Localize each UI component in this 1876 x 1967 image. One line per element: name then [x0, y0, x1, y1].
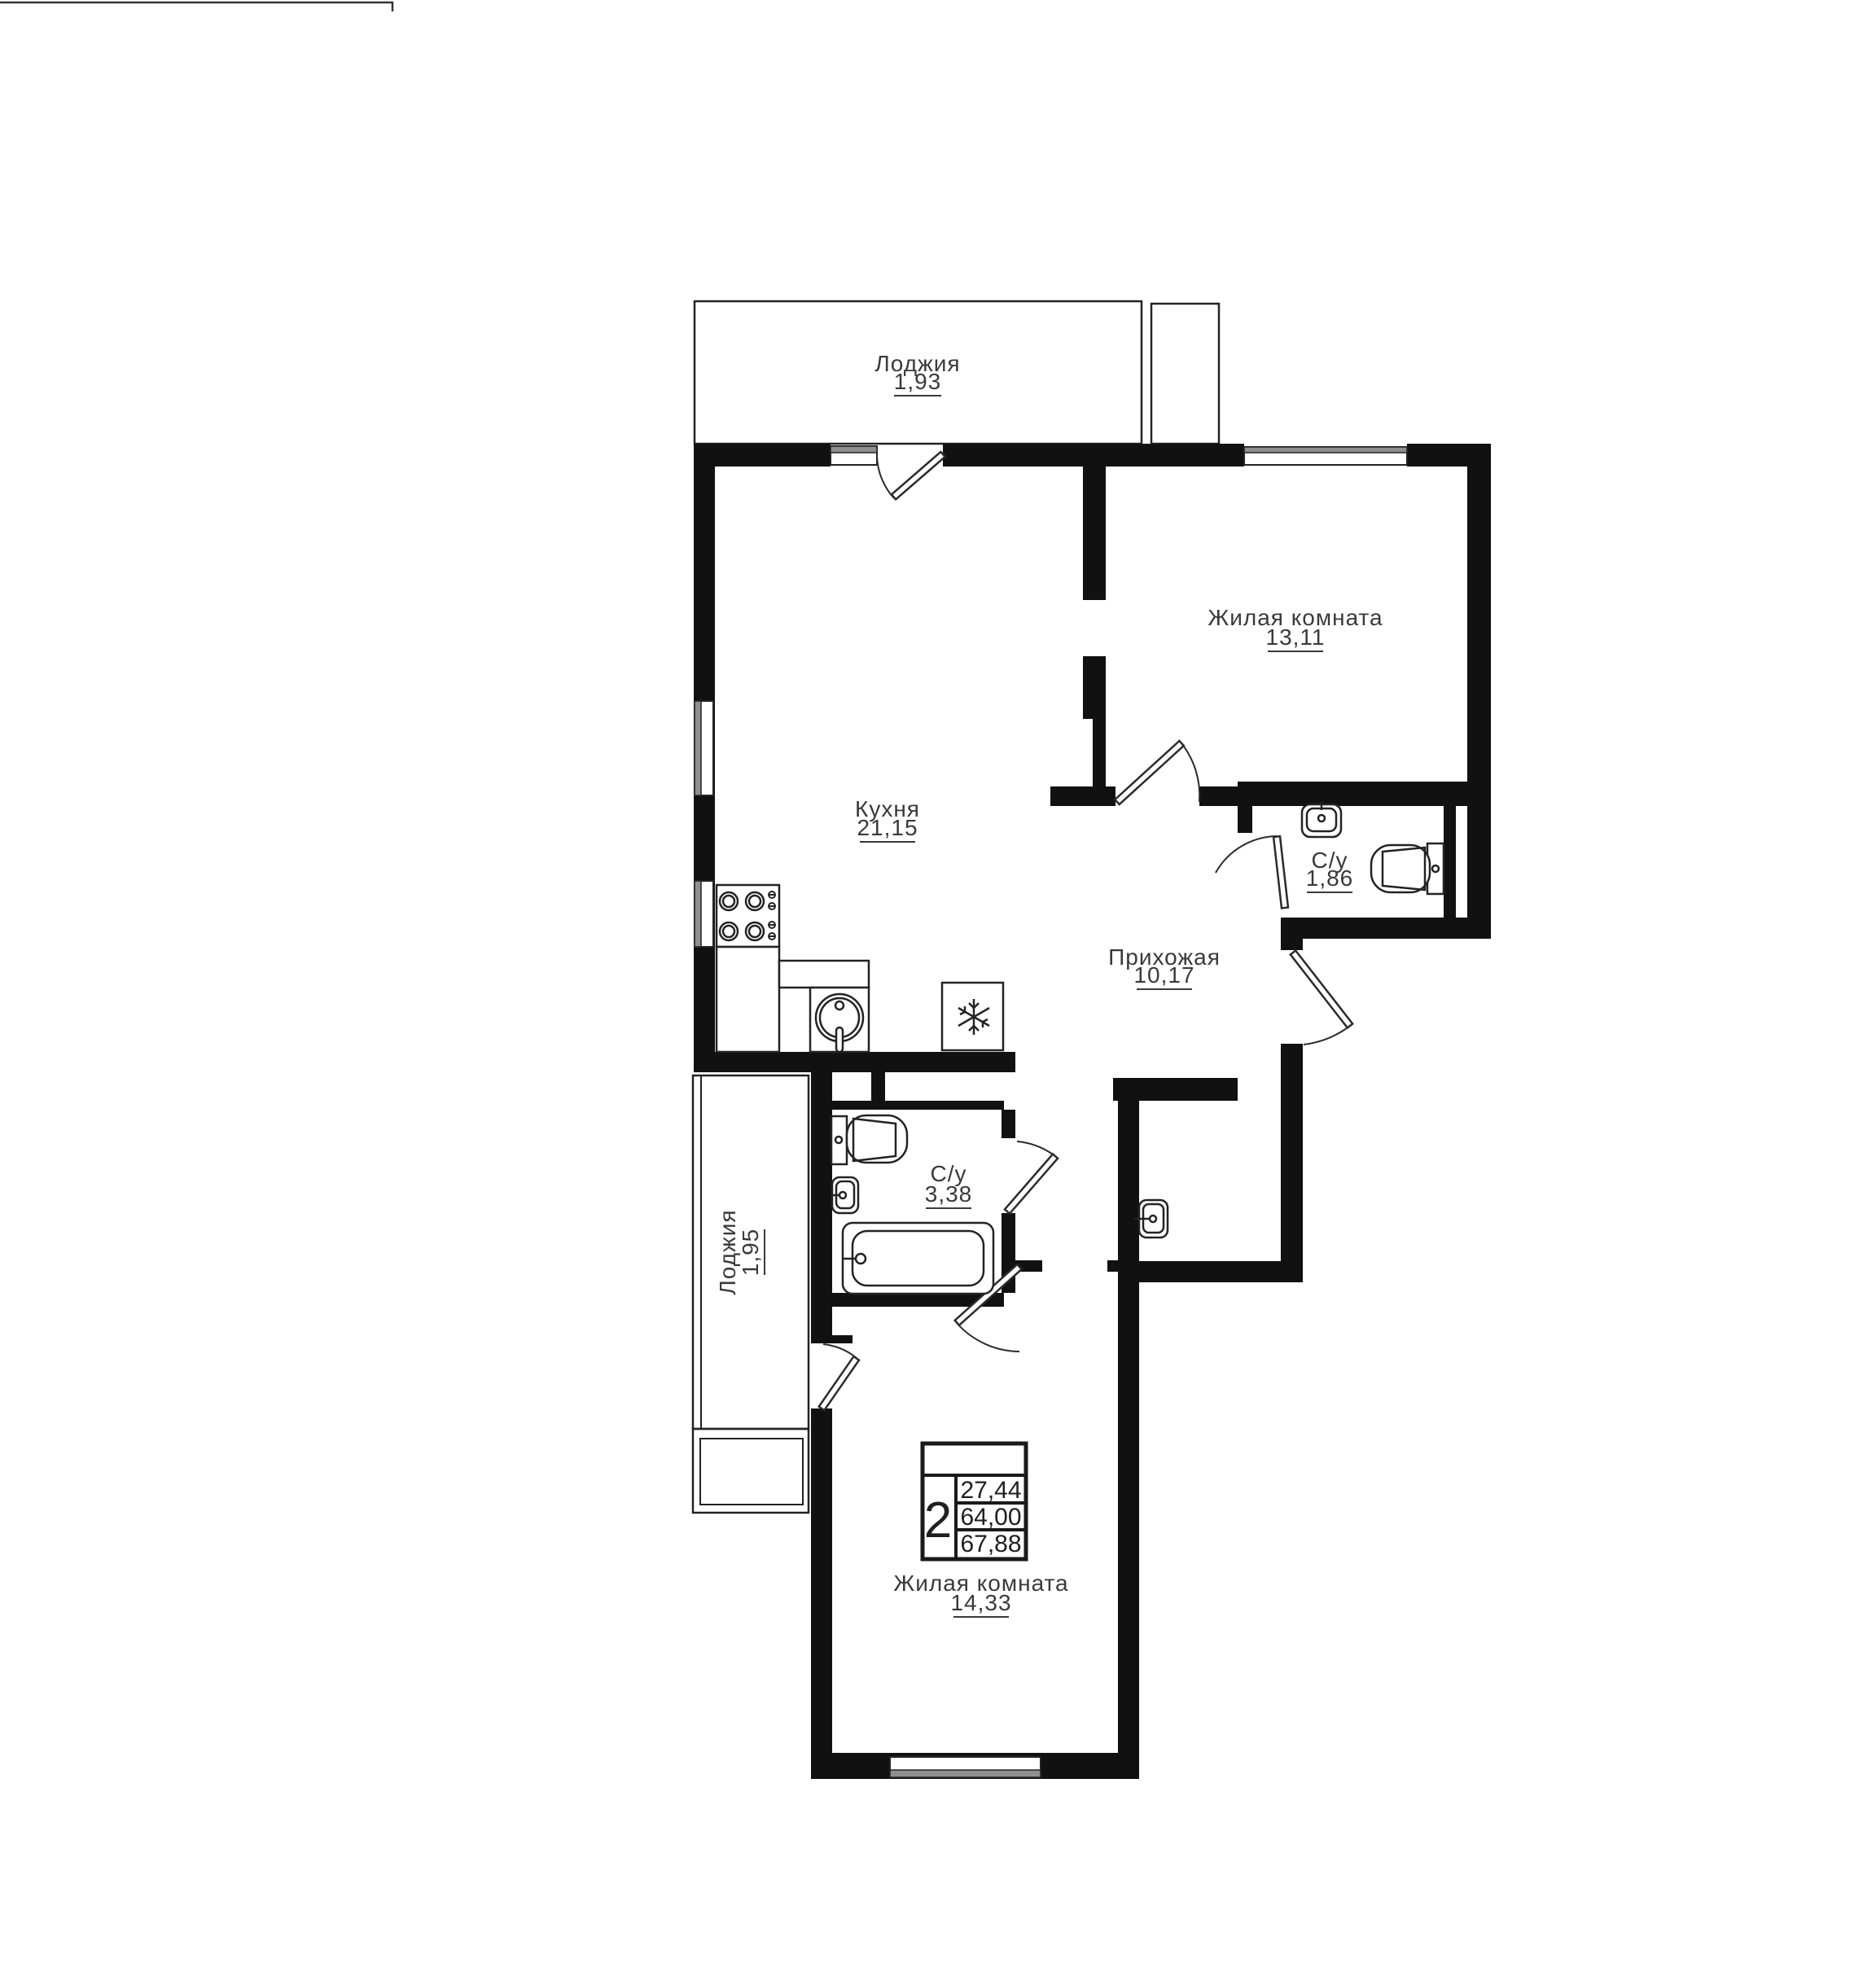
stove-icon [717, 885, 779, 947]
room-area: 3,38 [925, 1181, 973, 1207]
window-kitchen-lower [695, 881, 713, 947]
room-area: 1,86 [1306, 865, 1354, 891]
room-area: 1,95 [738, 1229, 763, 1277]
area-value-3: 67,88 [960, 1531, 1021, 1557]
room-area: 21,15 [857, 815, 918, 840]
room-label-loggia-top: Лоджия 1,93 [874, 351, 960, 396]
door-bathroom-small [1216, 836, 1288, 908]
room-area: 13,11 [1266, 624, 1326, 650]
room-label-living-bottom: Жилая комната 14,33 [893, 1571, 1068, 1617]
window-kitchen-upper [695, 701, 713, 795]
door-bathroom-large [1005, 1141, 1058, 1214]
window-living-bottom [890, 1757, 1041, 1777]
walls [694, 444, 1491, 1779]
kitchen-counter-2 [779, 961, 869, 988]
door-loggia-left [819, 1344, 859, 1410]
top-edge-artifact [0, 2, 392, 11]
window-balcony-top [831, 446, 877, 465]
kitchen-counter [717, 947, 779, 1052]
kitchen-furniture [717, 885, 1003, 1052]
floor-plan-svg: Лоджия 1,93 Жилая комната 13,11 Кухня 21… [0, 0, 1876, 1967]
room-label-bathroom-small: С/у 1,86 [1306, 848, 1354, 892]
room-name: Лоджия [715, 1209, 740, 1295]
room-label-loggia-left: Лоджия 1,95 [715, 1209, 765, 1295]
sink-icon-hallway [1134, 1200, 1168, 1238]
rooms-count: 2 [924, 1492, 952, 1549]
window-living-top [1244, 447, 1407, 465]
toilet-icon-small-bath [1371, 843, 1444, 894]
toilet-icon-large-bath [831, 1115, 907, 1164]
room-label-kitchen: Кухня 21,15 [855, 796, 920, 842]
fridge-icon [942, 983, 1003, 1050]
room-area: 10,17 [1133, 962, 1194, 988]
sink-icon-small-bath [1302, 801, 1341, 837]
bathtub-icon [843, 1223, 993, 1294]
room-label-living-top: Жилая комната 13,11 [1208, 605, 1383, 651]
sink-icon-large-bath [832, 1177, 858, 1213]
room-label-hallway: Прихожая 10,17 [1108, 944, 1221, 989]
area-value-1: 27,44 [960, 1477, 1021, 1504]
kitchen-sink-icon [810, 988, 869, 1052]
room-label-bathroom-large: С/у 3,38 [925, 1161, 973, 1208]
room-area: 14,33 [950, 1590, 1011, 1615]
loggia-left-outline [693, 1075, 809, 1513]
door-living-top [1115, 741, 1199, 804]
spec-box: 2 27,44 64,00 67,88 [923, 1443, 1026, 1559]
room-area: 1,93 [894, 369, 942, 394]
floor-plan-page: Лоджия 1,93 Жилая комната 13,11 Кухня 21… [0, 0, 1876, 1967]
area-value-2: 64,00 [960, 1504, 1021, 1531]
door-entrance [1291, 951, 1352, 1045]
door-balcony-top [877, 452, 945, 499]
